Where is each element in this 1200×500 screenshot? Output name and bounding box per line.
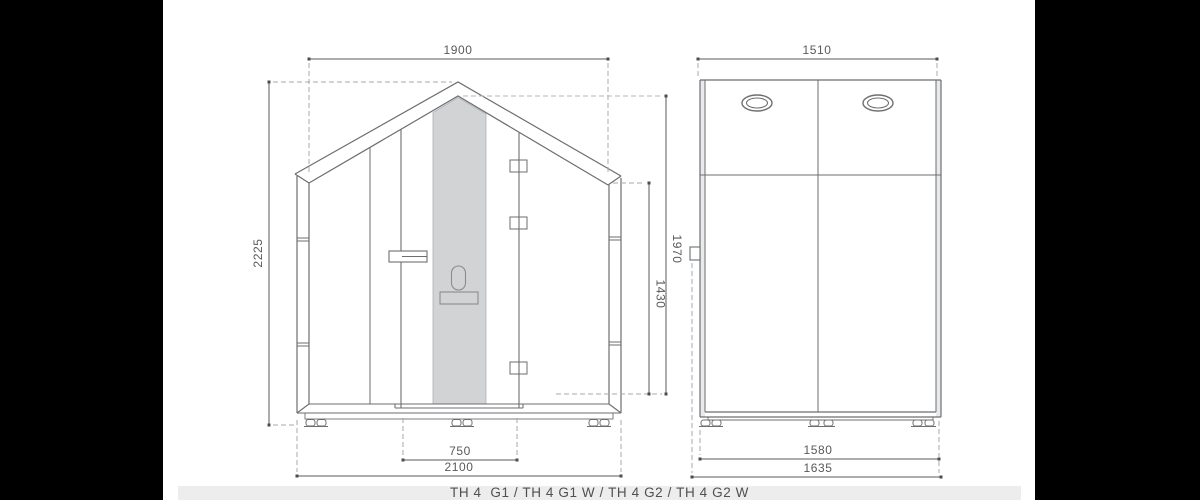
base-plinth xyxy=(297,404,621,419)
leveling-foot xyxy=(925,420,934,426)
dim-interior-peak-height: 1970 xyxy=(463,95,684,396)
glass-door-panel xyxy=(433,98,486,405)
dim-label-interior-wall-height: 1430 xyxy=(654,279,668,308)
leveling-foot xyxy=(701,420,710,426)
dim-label-total-depth: 1635 xyxy=(803,461,832,475)
dim-label-body-depth: 1580 xyxy=(803,443,832,457)
leveling-foot xyxy=(824,420,833,426)
technical-drawing-page: TH 4 G1 / TH 4 G1 W / TH 4 G2 / TH 4 G2 … xyxy=(0,0,1200,500)
dim-label-top-width: 1510 xyxy=(802,43,831,57)
leveling-foot xyxy=(306,420,315,427)
leveling-foot xyxy=(589,420,598,427)
side-panel-strip-left xyxy=(700,80,705,417)
leveling-foot xyxy=(913,420,922,426)
ceiling-vent-icon xyxy=(747,98,768,108)
booth-technical-drawing: 1900 2225 1970 xyxy=(0,0,1200,500)
side-view-dimensions: 1510 1580 1635 xyxy=(691,43,943,479)
dim-top-width: 1510 xyxy=(697,43,939,79)
leveling-foot xyxy=(600,420,609,427)
leveling-feet-side xyxy=(699,420,936,427)
door-handle-side xyxy=(690,247,700,260)
dim-label-interior-peak-height: 1970 xyxy=(670,234,684,263)
ceiling-vent-icon xyxy=(868,98,889,108)
side-view-drawing xyxy=(690,80,941,427)
leveling-foot xyxy=(712,420,721,426)
left-wall-panel-joints xyxy=(297,238,309,346)
leveling-foot xyxy=(810,420,819,426)
right-wall-panel-joints xyxy=(609,237,621,345)
door-handle-front xyxy=(389,251,427,262)
dim-label-roof-width: 1900 xyxy=(443,43,472,57)
dim-body-depth: 1580 xyxy=(699,430,941,461)
leveling-foot xyxy=(463,420,472,427)
leveling-feet-front xyxy=(304,420,611,427)
leveling-foot xyxy=(452,420,461,427)
dim-label-door-width: 750 xyxy=(449,444,471,458)
leveling-foot xyxy=(317,420,326,427)
roof-eave-cap-right xyxy=(608,176,621,185)
side-panel-strip-right xyxy=(936,80,941,417)
dim-label-total-height: 2225 xyxy=(251,238,265,267)
dim-label-total-width: 2100 xyxy=(444,460,473,474)
front-view-drawing xyxy=(295,82,621,427)
